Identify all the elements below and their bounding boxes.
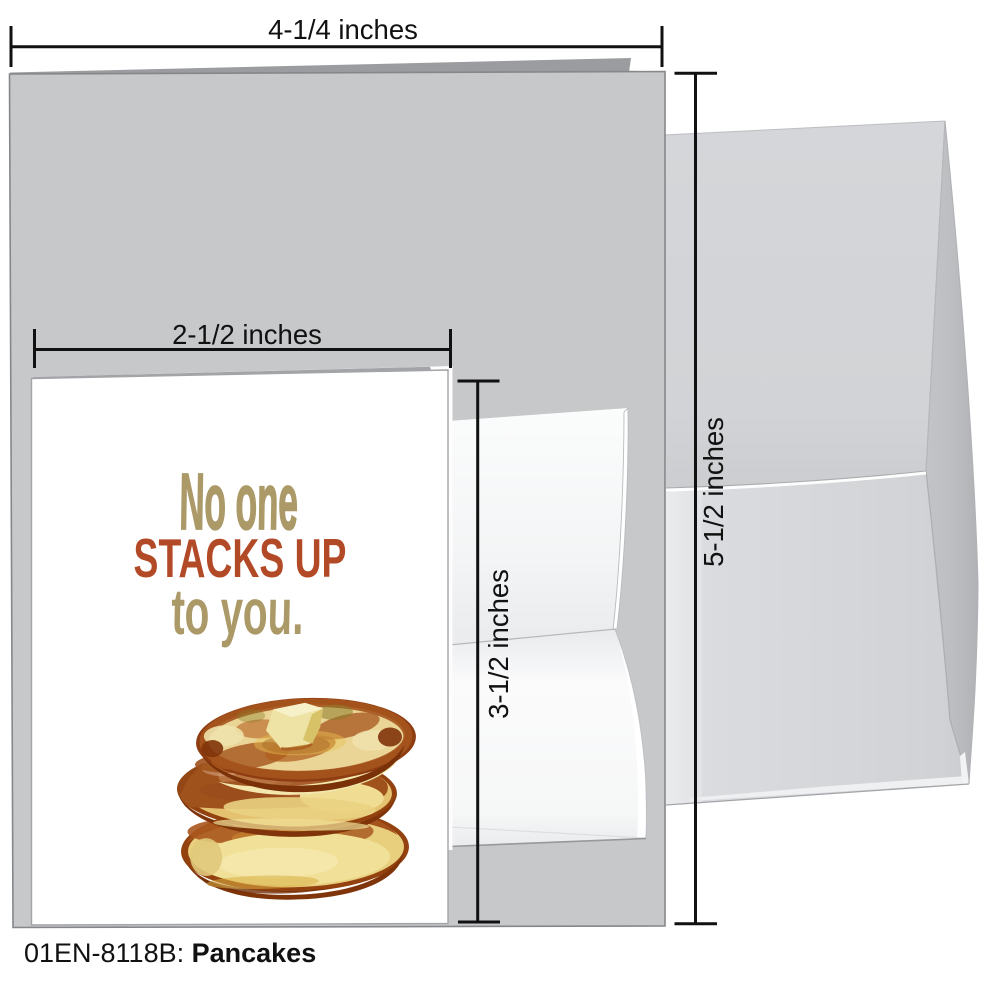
svg-text:3-1/2 inches: 3-1/2 inches xyxy=(483,569,514,719)
svg-text:4-1/4 inches: 4-1/4 inches xyxy=(268,14,418,45)
svg-text:2-1/2 inches: 2-1/2 inches xyxy=(172,319,322,350)
svg-text:to you.: to you. xyxy=(167,577,306,649)
svg-text:5-1/2 inches: 5-1/2 inches xyxy=(698,417,729,567)
svg-text:01EN-8118B: Pancakes: 01EN-8118B: Pancakes xyxy=(24,938,316,968)
